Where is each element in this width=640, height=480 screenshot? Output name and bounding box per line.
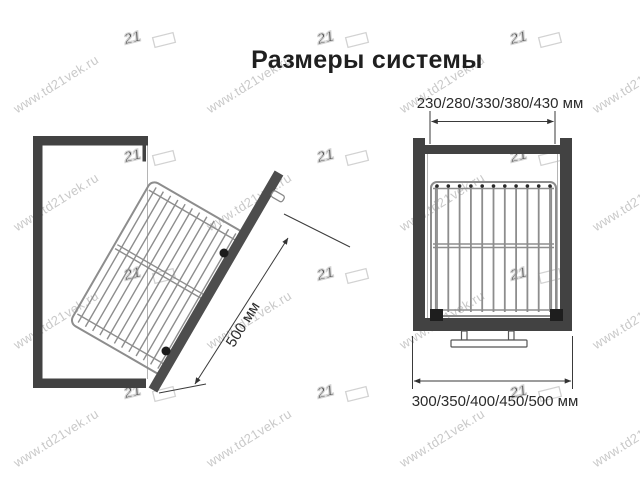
wire-top-dots [435,184,552,188]
basket-foot [550,309,563,321]
hinge-stub [143,146,147,162]
dimension-top-width [430,111,555,144]
dimension-top-label: 230/280/330/380/430 мм [417,95,584,112]
rail-hook-icon [270,190,285,203]
mount-dot [162,347,171,356]
dimension-bottom-label: 300/350/400/450/500 мм [412,393,579,410]
diagram-page: www.td21vek.ruwww.td21vek.ruwww.td21vek.… [0,0,640,480]
basket-mid-rail [117,245,205,296]
cabinet-side-frame [33,136,148,388]
mount-dot [220,249,229,258]
basket-foot [430,309,443,321]
front-view-diagram: 230/280/330/380/430 мм 300/350/400/450/5… [412,95,584,410]
side-view-diagram: 500 мм [33,136,350,393]
front-wire-basket [430,182,563,321]
page-title: Размеры системы [251,46,483,75]
basket-wires [437,185,550,312]
foot-pedestal [451,331,527,347]
dimension-500-label: 500 мм [223,299,264,350]
